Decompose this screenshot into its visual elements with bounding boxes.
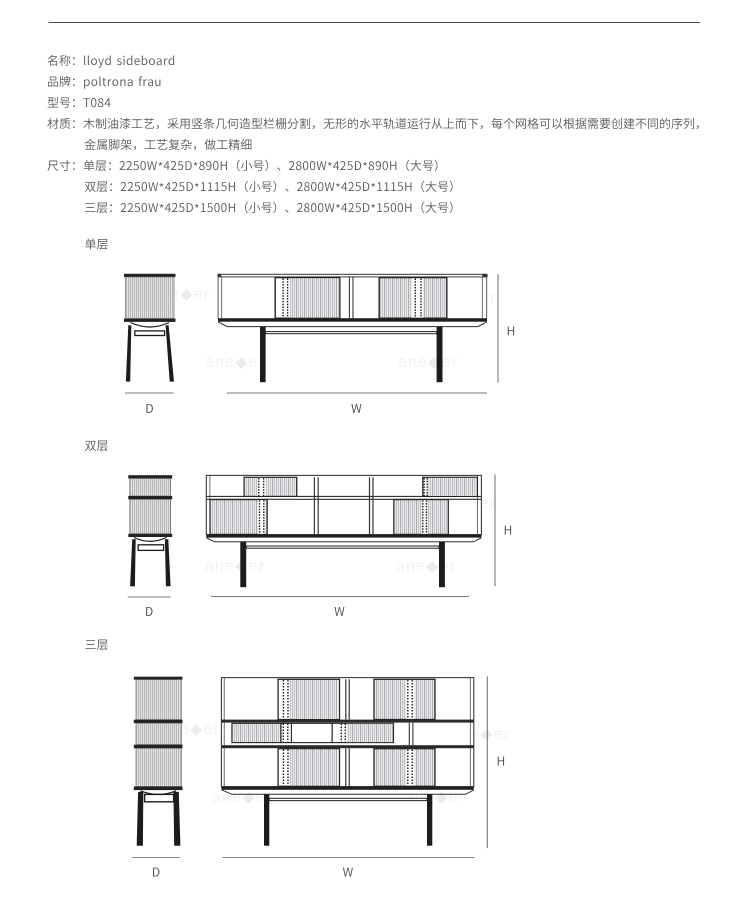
svg-text:ane◆er: ane◆er xyxy=(205,558,266,575)
svg-text:ane◆er: ane◆er xyxy=(398,354,459,371)
svg-text:ane◆er: ane◆er xyxy=(405,789,466,806)
svg-text:ane◆er: ane◆er xyxy=(396,558,457,575)
svg-text:ane◆er: ane◆er xyxy=(212,789,273,806)
svg-text:ane◆er: ane◆er xyxy=(205,354,266,371)
